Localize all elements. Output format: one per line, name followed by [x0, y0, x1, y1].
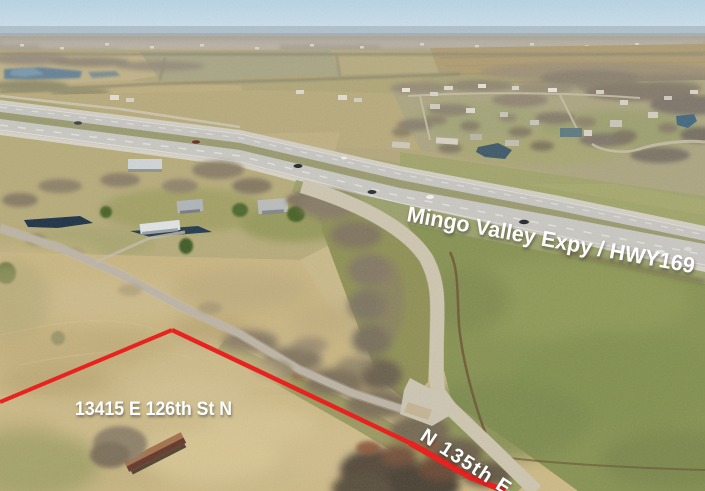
svg-text:13415 E 126th St N: 13415 E 126th St N — [75, 398, 232, 420]
